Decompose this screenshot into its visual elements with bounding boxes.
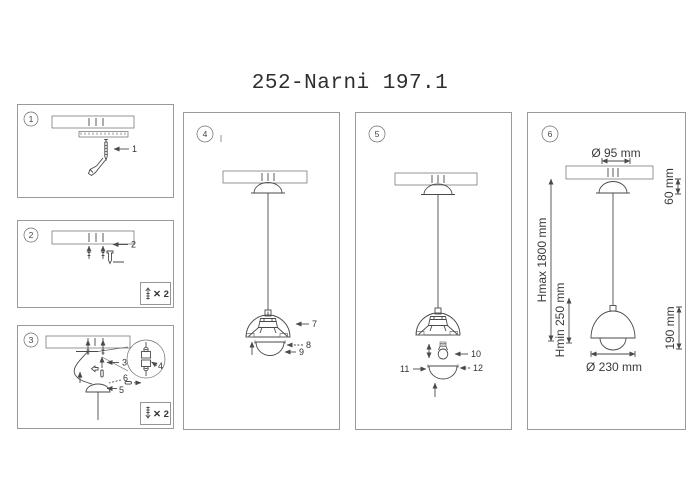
svg-text:✕ 2: ✕ 2 <box>153 289 169 300</box>
step-badge: 1 <box>24 112 38 126</box>
svg-text:4: 4 <box>158 361 163 371</box>
dim-canopy-diameter: Ø 95 mm <box>591 146 640 164</box>
panel-step-3: 3 <box>17 325 174 429</box>
screw-icon <box>104 140 108 161</box>
dim-max-height: Hmax 1800 mm <box>535 179 554 341</box>
svg-text:Ø 230 mm: Ø 230 mm <box>586 360 642 374</box>
shade-side-view <box>591 306 635 351</box>
ceiling-hatch <box>52 231 134 244</box>
svg-text:5: 5 <box>119 385 124 395</box>
step-badge: 3 <box>24 333 38 347</box>
ceiling-hatch <box>395 173 477 185</box>
step-badge: 5 <box>369 126 385 142</box>
page-title: 252-Narni 197.1 <box>0 72 700 95</box>
panel-step-2: 2 2 <box>17 220 174 308</box>
svg-text:1: 1 <box>132 144 137 154</box>
screws-up-icon <box>87 340 105 355</box>
ceiling-hatch <box>52 116 134 128</box>
part-label-diffuser: 9 <box>285 347 304 357</box>
canopy-dome <box>86 384 110 420</box>
svg-text:5: 5 <box>375 129 380 139</box>
screw-down-icon <box>146 407 150 419</box>
corner-quantity-box: ✕ 2 <box>141 403 171 425</box>
panel-step-4: 4 <box>183 112 340 430</box>
svg-text:3: 3 <box>29 335 34 345</box>
svg-text:7: 7 <box>312 319 317 329</box>
screw-up-icon <box>146 288 150 300</box>
svg-text:2: 2 <box>131 240 136 250</box>
instruction-sheet: 252-Narni 197.1 1 1 <box>0 0 700 495</box>
part-label-glass-ring: 12 <box>460 363 483 373</box>
strain-relief-screw-icon <box>92 357 104 377</box>
canopy-dome <box>421 184 455 195</box>
svg-text:10: 10 <box>471 349 481 359</box>
diffuser-dome <box>428 365 458 380</box>
dim-canopy-height: 60 mm <box>662 168 681 205</box>
dim-shade-diameter: Ø 230 mm <box>586 351 642 374</box>
svg-text:2: 2 <box>29 230 34 240</box>
magnifier-circle: 4 <box>127 340 165 378</box>
panel-step-1: 1 1 <box>17 104 174 198</box>
canopy-dome <box>596 182 630 194</box>
dim-min-height: Hmin 250 mm <box>553 283 572 358</box>
part-label-bulb: 10 <box>455 349 481 359</box>
svg-text:3: 3 <box>122 358 127 368</box>
svg-text:11: 11 <box>400 364 409 374</box>
svg-text:60 mm: 60 mm <box>662 168 676 205</box>
ceiling-hatch <box>566 166 653 179</box>
part-label-strain-relief: 3 <box>107 358 127 368</box>
panel-step-6: 6 Ø 95 mm 60 mm Hmax <box>527 112 686 430</box>
svg-text:Hmax 1800 mm: Hmax 1800 mm <box>535 218 549 303</box>
svg-text:12: 12 <box>473 363 483 373</box>
svg-text:6: 6 <box>548 129 553 139</box>
part-label-shade: 7 <box>296 319 317 329</box>
svg-text:Hmin 250 mm: Hmin 250 mm <box>553 283 567 358</box>
diffuser-dome <box>255 341 285 356</box>
shade-assembly <box>246 310 290 337</box>
ceiling-hatch <box>223 171 307 183</box>
svg-text:9: 9 <box>299 347 304 357</box>
svg-text:8: 8 <box>306 340 311 350</box>
panel-step-5: 5 <box>355 112 512 430</box>
wall-anchor-icon <box>107 251 124 264</box>
step-badge: 6 <box>542 126 558 142</box>
svg-text:Ø 95 mm: Ø 95 mm <box>591 146 640 160</box>
part-label-screw: 1 <box>114 144 137 154</box>
screws-up-icon <box>88 246 105 259</box>
mounting-plate <box>79 132 128 138</box>
canopy-dome <box>251 183 285 194</box>
bulb-icon <box>438 342 448 359</box>
part-label-terminal-block: 4 <box>152 361 164 371</box>
corner-quantity-box: ✕ 2 <box>141 283 171 305</box>
svg-text:1: 1 <box>29 114 34 124</box>
step-badge: 4 <box>197 126 221 142</box>
dim-shade-height: 190 mm <box>663 306 682 349</box>
step-badge: 2 <box>24 228 38 242</box>
screwdriver-icon <box>89 158 106 176</box>
shade-assembly <box>416 308 460 335</box>
svg-text:190 mm: 190 mm <box>663 306 677 349</box>
svg-text:4: 4 <box>203 129 208 139</box>
part-label-diffuser: 11 <box>400 364 426 374</box>
cable-curve <box>74 352 92 385</box>
svg-text:✕ 2: ✕ 2 <box>153 409 169 420</box>
part-label-grub-screw: 6 <box>109 373 141 384</box>
part-label-screws: 2 <box>113 240 136 250</box>
terminal-block-icon <box>142 342 151 376</box>
